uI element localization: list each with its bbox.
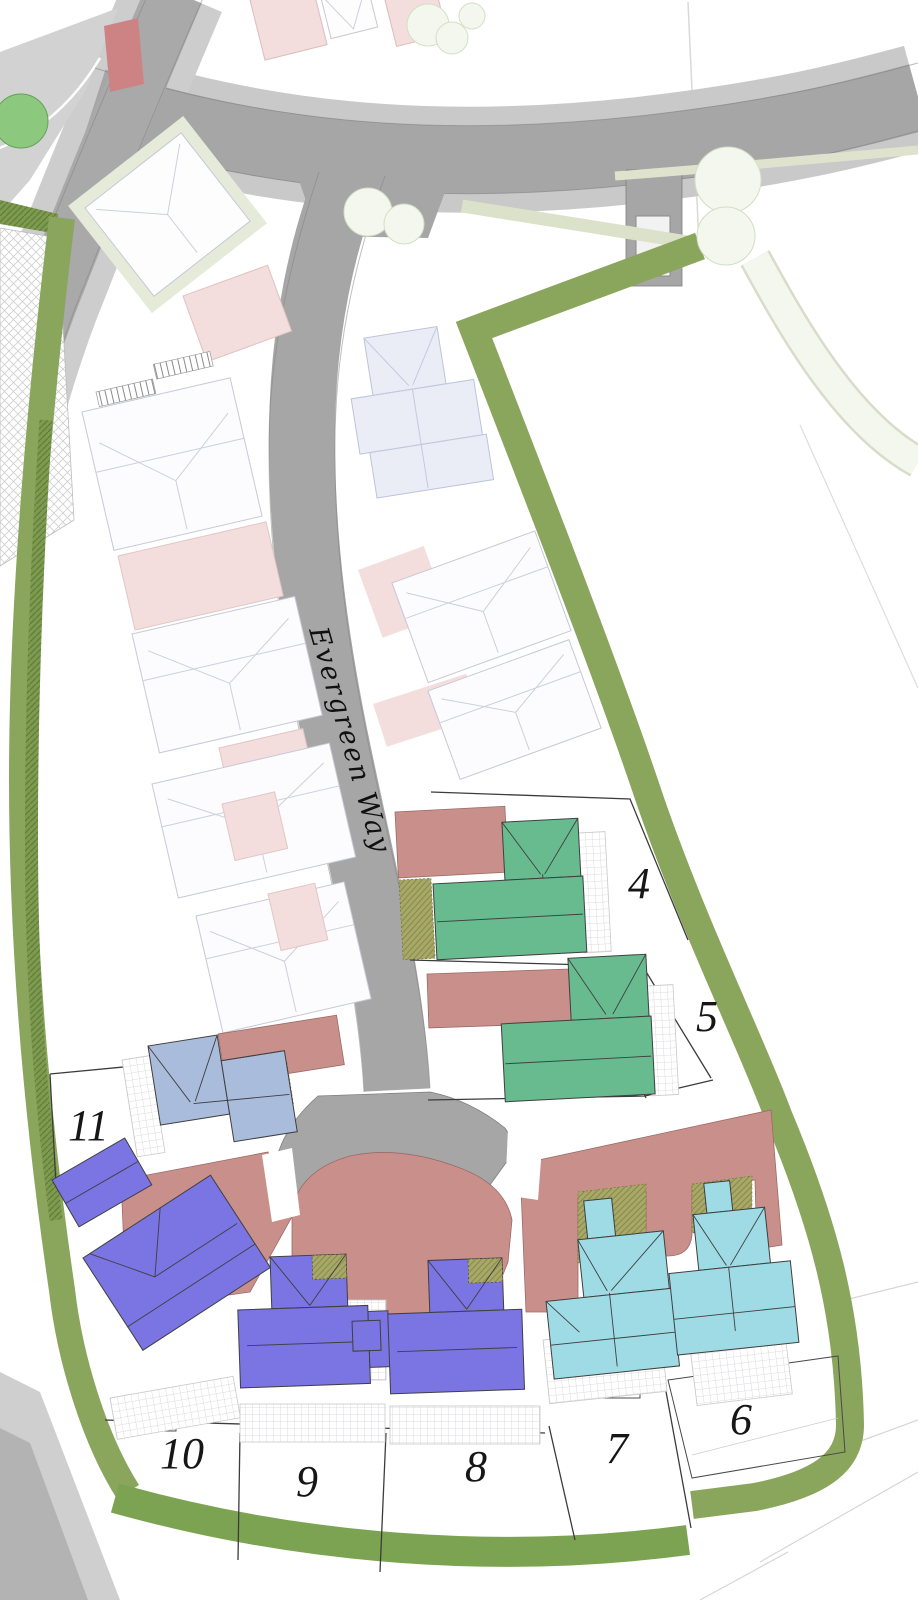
plot-label-5: 5	[696, 992, 718, 1041]
plot-label-7: 7	[606, 1424, 630, 1473]
tree-icon	[436, 22, 468, 54]
site-plan-canvas: Evergreen Way 4 5 6 7 8 9 10 11	[0, 0, 918, 1600]
plot-label-9: 9	[296, 1457, 318, 1506]
tree-icon	[697, 207, 755, 265]
existing-house	[320, 0, 378, 39]
plot-5-driveway	[427, 969, 579, 1028]
tree-icon	[0, 94, 48, 148]
tree-icon	[384, 204, 424, 244]
site-plan-svg: Evergreen Way 4 5 6 7 8 9 10 11	[0, 0, 918, 1600]
plot-4-driveway	[395, 806, 508, 878]
plot-6-garden-line	[692, 1418, 838, 1455]
tree-icon	[695, 147, 761, 213]
patio	[240, 1404, 385, 1442]
tree-icon	[459, 3, 485, 29]
plot-label-10: 10	[160, 1429, 204, 1478]
field-track-fill	[755, 258, 918, 462]
plot-label-4: 4	[628, 859, 650, 908]
existing-building	[250, 0, 327, 60]
hatched-garden	[399, 878, 435, 960]
boundary-hedge-bottom	[115, 1498, 688, 1552]
plot-label-8: 8	[465, 1442, 487, 1491]
plot-label-6: 6	[730, 1395, 752, 1444]
patio	[390, 1406, 540, 1444]
footpath-gap	[505, 1120, 544, 1200]
plot-label-11: 11	[68, 1101, 109, 1150]
pedestrian-crossing	[104, 18, 144, 92]
